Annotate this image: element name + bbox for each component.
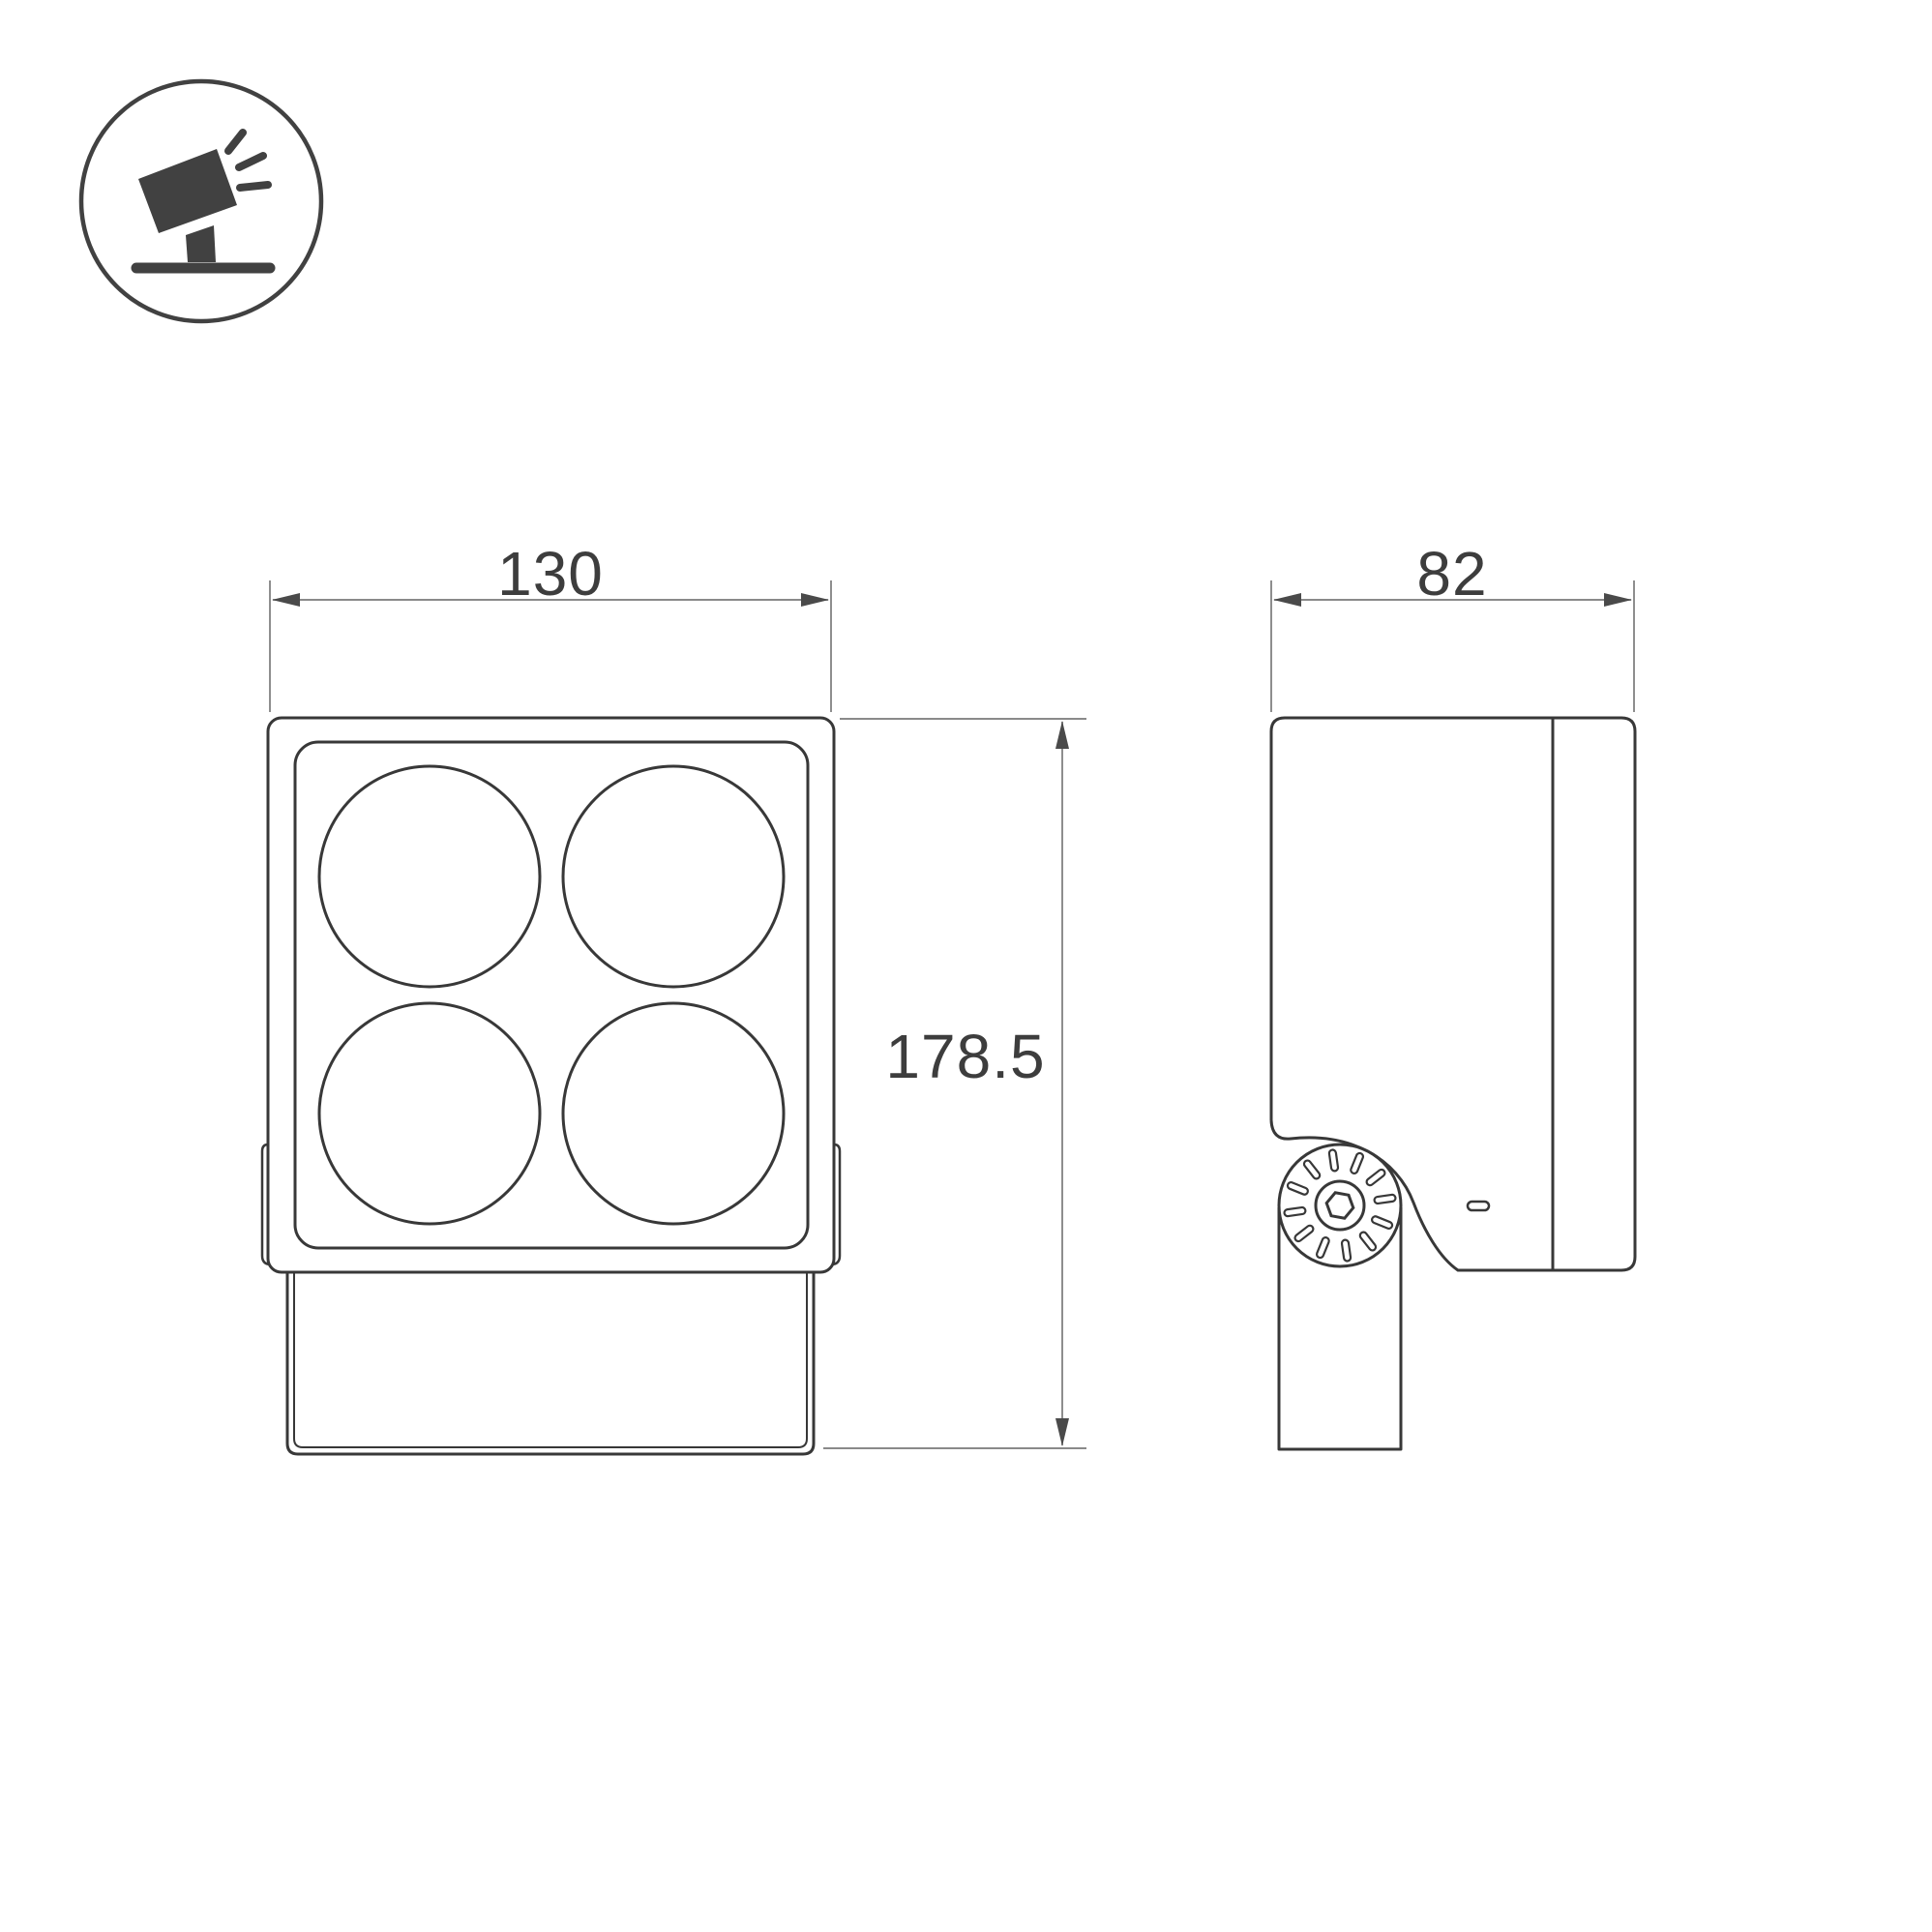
icon-light-ray-bottom bbox=[240, 185, 268, 188]
arrowhead-up bbox=[1055, 721, 1069, 749]
icon-light-ray-middle bbox=[239, 156, 263, 167]
arrowhead-left bbox=[1273, 593, 1301, 607]
front-view bbox=[262, 718, 840, 1454]
arrowhead-down bbox=[1055, 1418, 1069, 1446]
front-bracket-plate-outer bbox=[287, 1270, 814, 1454]
knob-hub-circle bbox=[1316, 1181, 1364, 1230]
dimension-value-front-width: 130 bbox=[497, 539, 604, 609]
dimension-value-overall-height: 178.5 bbox=[885, 1022, 1045, 1091]
drawing-canvas: 130 82 178.5 bbox=[0, 0, 1932, 1932]
front-body bbox=[268, 718, 834, 1272]
side-view bbox=[1271, 718, 1635, 1449]
icon-lamp-head bbox=[138, 149, 237, 233]
icon-light-ray-top bbox=[228, 133, 243, 151]
icon-lamp-stem bbox=[186, 225, 216, 262]
technical-drawing: 130 82 178.5 bbox=[0, 0, 1932, 1932]
dimension-side-depth: 82 bbox=[1271, 539, 1634, 712]
arrowhead-left bbox=[272, 593, 300, 607]
floodlight-icon bbox=[81, 81, 321, 321]
dimension-value-side-depth: 82 bbox=[1416, 539, 1487, 609]
dimension-front-width: 130 bbox=[270, 539, 831, 712]
dimension-overall-height: 178.5 bbox=[823, 719, 1086, 1448]
arrowhead-right bbox=[801, 593, 829, 607]
arrowhead-right bbox=[1604, 593, 1632, 607]
